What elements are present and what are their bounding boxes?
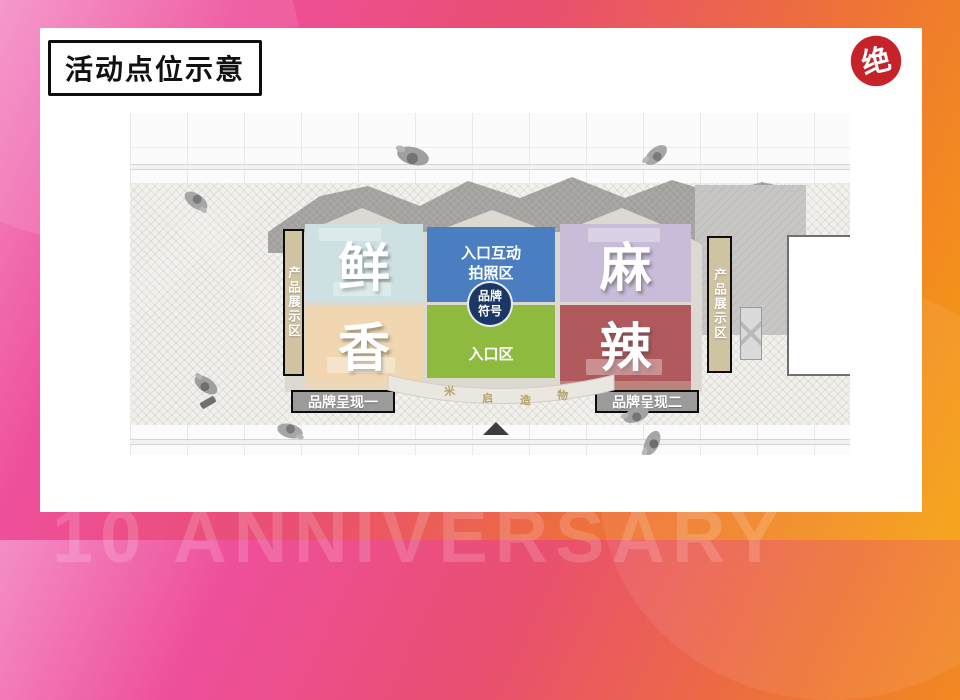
zone-fragrant: 香 <box>305 305 423 381</box>
zone-numbing: 麻 <box>560 224 691 302</box>
product-display-label: 产品展示区 <box>710 268 729 341</box>
storefront-sign-char: 物 <box>556 386 569 403</box>
product-display-bar-left: 产品展示区 <box>283 229 304 376</box>
road-edge-line <box>130 164 850 170</box>
brand-symbol-marker: 品牌 符号 <box>467 281 513 327</box>
product-display-bar-right: 产品展示区 <box>707 236 732 373</box>
booth-furniture <box>333 282 391 296</box>
storefront-sign-char: 启 <box>482 390 494 407</box>
site-plan: 鲜 香 麻 辣 入口互动 拍照区 入口区 品牌 符号 产品展示区 <box>130 113 850 455</box>
slide-panel: 活动点位示意 绝 鲜 香 <box>40 28 922 512</box>
storefront-sign-char: 造 <box>520 392 532 409</box>
storefront-sign-char: 米 <box>443 382 456 399</box>
slide: { "slide": { "title": "活动点位示意", "waterma… <box>0 0 960 540</box>
booth-furniture <box>319 228 381 241</box>
brand-symbol-line1: 品牌 <box>478 289 502 304</box>
brand-seal-icon: 绝 <box>848 30 904 90</box>
page-title: 活动点位示意 <box>48 40 262 96</box>
booth-furniture <box>588 228 660 242</box>
brand-presentation-one: 品牌呈现一 <box>291 390 395 413</box>
zone-fresh: 鲜 <box>305 224 423 302</box>
road-edge-line <box>130 439 850 445</box>
pavement-line <box>130 147 850 148</box>
entrance-label: 入口区 <box>468 343 513 364</box>
photo-area-line1: 入口互动 <box>461 244 521 264</box>
booth-furniture <box>586 359 662 375</box>
zone-spicy: 辣 <box>560 305 691 381</box>
kiosk-block <box>740 307 762 360</box>
booth-furniture <box>327 357 395 373</box>
brand-symbol-line2: 符号 <box>478 304 502 319</box>
building-footprint <box>787 235 850 376</box>
sidewalk-top <box>130 113 850 183</box>
entrance-arrow-icon <box>483 422 509 435</box>
booth-edge-strip <box>560 381 691 390</box>
product-display-label: 产品展示区 <box>284 266 303 339</box>
